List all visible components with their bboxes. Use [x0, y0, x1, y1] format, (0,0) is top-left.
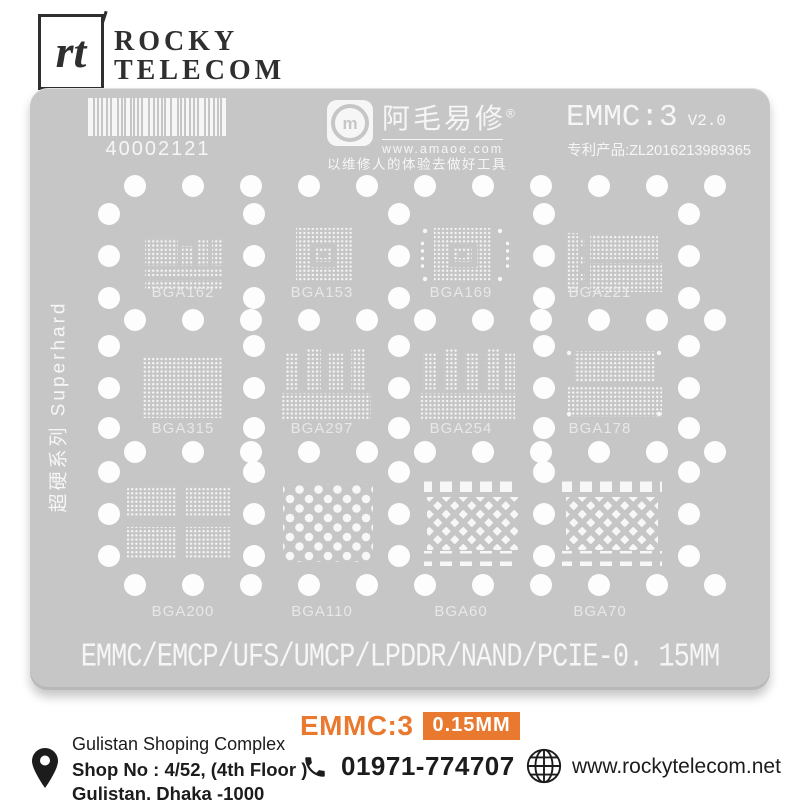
barcode-bar [95, 98, 97, 136]
globe-icon [525, 747, 563, 785]
barcode-bar [126, 98, 129, 136]
barcode-bar [172, 98, 177, 136]
barcode-bar [210, 98, 213, 136]
barcode: 40002121 [88, 98, 228, 161]
barcode-bar [139, 98, 141, 136]
supported-chips-text: EMMC/EMCP/UFS/UMCP/LPDDR/NAND/PCIE-0. 15… [30, 640, 770, 677]
registered-mark: ® [506, 107, 518, 121]
barcode-bar [206, 98, 208, 136]
barcode-bar [112, 98, 117, 136]
product-name: EMMC:3 [300, 710, 413, 742]
stencil-plate [30, 88, 770, 690]
barcode-bars [88, 98, 228, 136]
barcode-bar [135, 98, 137, 136]
model-version: V2.0 [688, 112, 726, 130]
amaoe-m-glyph: m [331, 104, 369, 142]
barcode-bar [88, 98, 93, 136]
amaoe-brand-name: 阿毛易修® [382, 97, 518, 137]
barcode-bar [155, 98, 157, 136]
barcode-bar [179, 98, 181, 136]
logo-monogram: rt [56, 29, 87, 75]
barcode-bar [132, 98, 134, 136]
patent-number: 专利产品:ZL2016213989365 [548, 139, 770, 160]
product-row: EMMC:3 0.15MM [300, 710, 520, 742]
barcode-bar [222, 98, 225, 136]
size-badge: 0.15MM [423, 712, 519, 740]
barcode-bar [123, 98, 125, 136]
barcode-bar [119, 98, 121, 136]
barcode-bar [191, 98, 193, 136]
barcode-bar [163, 98, 165, 136]
barcode-bar [159, 98, 161, 136]
model-block: EMMC:3 V2.0 [566, 100, 726, 135]
logo-tick-mark [101, 11, 107, 22]
barcode-bar [166, 98, 169, 136]
phone-icon [302, 754, 328, 780]
address-line-3: Gulistan, Dhaka -1000 [72, 782, 307, 800]
location-pin-icon [32, 748, 58, 788]
model-name: EMMC:3 [566, 100, 678, 135]
barcode-bar [103, 98, 106, 136]
barcode-bar [186, 98, 189, 136]
barcode-bar [150, 98, 153, 136]
phone-number: 01971-774707 [341, 751, 515, 782]
barcode-bar [143, 98, 148, 136]
barcode-bar [215, 98, 217, 136]
phone-row: 01971-774707 [302, 751, 515, 782]
brand-name: ROCKY TELECOM [114, 28, 285, 85]
address-line-1: Gulistan Shoping Complex [72, 734, 307, 755]
amaoe-slogan: 以维修人的体验去做好工具 [327, 153, 552, 173]
rocky-telecom-logo: rt [38, 14, 104, 90]
brand-line-2: TELECOM [114, 57, 285, 86]
website-url: www.rockytelecom.net [572, 755, 781, 779]
series-side-text: 超硬系列 Superhard [44, 257, 71, 557]
address-block: Gulistan Shoping Complex Shop No : 4/52,… [72, 734, 307, 800]
barcode-bar [195, 98, 197, 136]
amaoe-brand-block: 阿毛易修® www.amaoe.com [382, 97, 518, 158]
barcode-bar [182, 98, 184, 136]
barcode-bar [108, 98, 110, 136]
barcode-bar [99, 98, 101, 136]
barcode-bar [199, 98, 204, 136]
barcode-number: 40002121 [88, 138, 228, 161]
brand-line-1: ROCKY [114, 28, 285, 57]
amaoe-logo-icon: m [327, 100, 373, 146]
product-image: rt ROCKY TELECOM BGA162BGA153B [0, 0, 800, 800]
footer: Gulistan Shoping Complex Shop No : 4/52,… [0, 695, 800, 800]
barcode-bar [219, 98, 221, 136]
address-line-2: Shop No : 4/52, (4th Floor ) [72, 758, 307, 782]
